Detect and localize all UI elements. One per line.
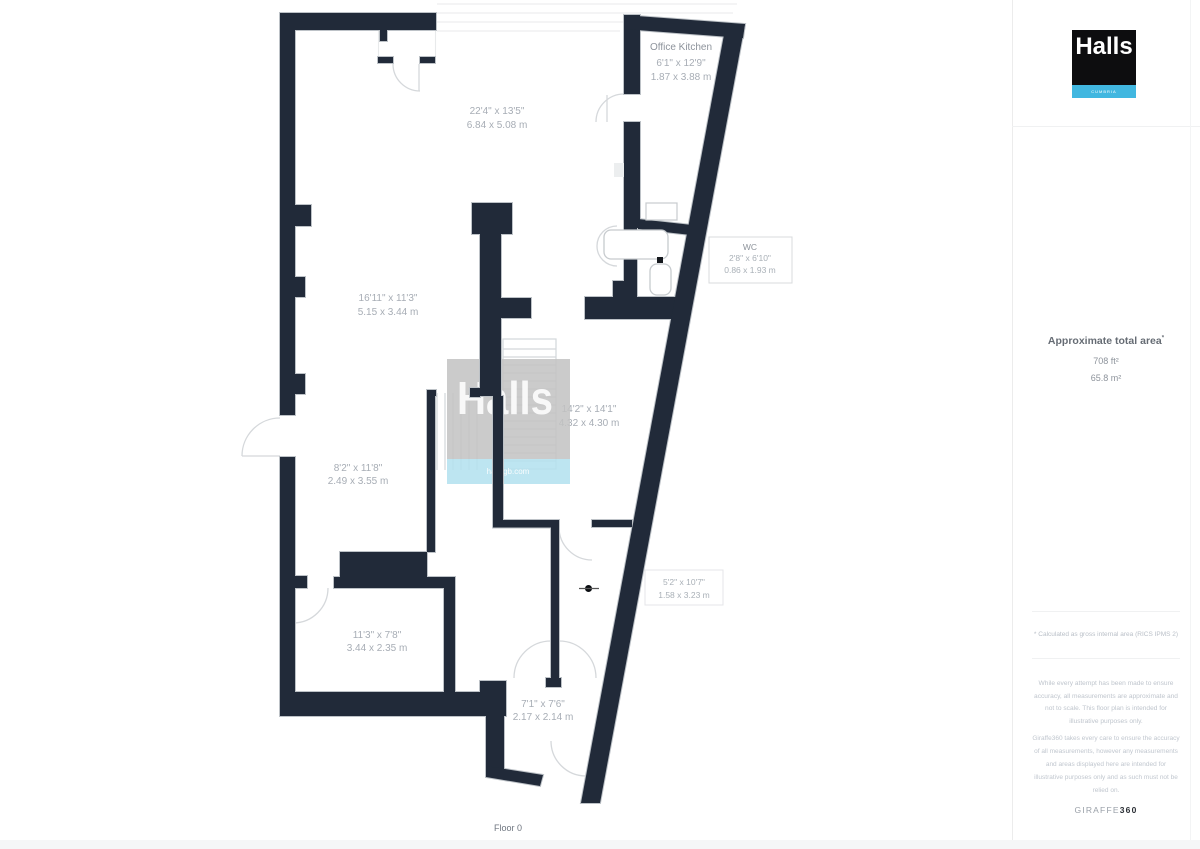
svg-text:2'8" x 6'10": 2'8" x 6'10" <box>729 253 771 263</box>
svg-text:2.17 x 2.14 m: 2.17 x 2.14 m <box>513 712 574 723</box>
svg-text:WC: WC <box>743 242 757 252</box>
svg-text:8'2" x 11'8": 8'2" x 11'8" <box>334 463 383 474</box>
svg-text:16'11" x 11'3": 16'11" x 11'3" <box>359 293 418 304</box>
svg-text:6.84 x 5.08 m: 6.84 x 5.08 m <box>467 120 528 131</box>
svg-text:5.15 x 3.44 m: 5.15 x 3.44 m <box>358 307 419 318</box>
svg-text:22'4" x 13'5": 22'4" x 13'5" <box>470 106 525 117</box>
svg-text:7'1" x 7'6": 7'1" x 7'6" <box>521 699 565 710</box>
svg-text:1.58 x 3.23 m: 1.58 x 3.23 m <box>658 590 710 600</box>
svg-text:2.49 x 3.55 m: 2.49 x 3.55 m <box>328 476 389 487</box>
svg-text:Floor 0: Floor 0 <box>494 823 522 833</box>
svg-text:Office Kitchen: Office Kitchen <box>650 42 712 53</box>
svg-text:11'3" x 7'8": 11'3" x 7'8" <box>353 630 402 641</box>
svg-text:6'1" x 12'9": 6'1" x 12'9" <box>656 58 706 69</box>
svg-text:1.87 x 3.88 m: 1.87 x 3.88 m <box>651 72 712 83</box>
svg-text:5'2" x 10'7": 5'2" x 10'7" <box>663 577 705 587</box>
svg-text:0.86 x 1.93 m: 0.86 x 1.93 m <box>724 265 776 275</box>
svg-text:3.44 x 2.35 m: 3.44 x 2.35 m <box>347 643 408 654</box>
